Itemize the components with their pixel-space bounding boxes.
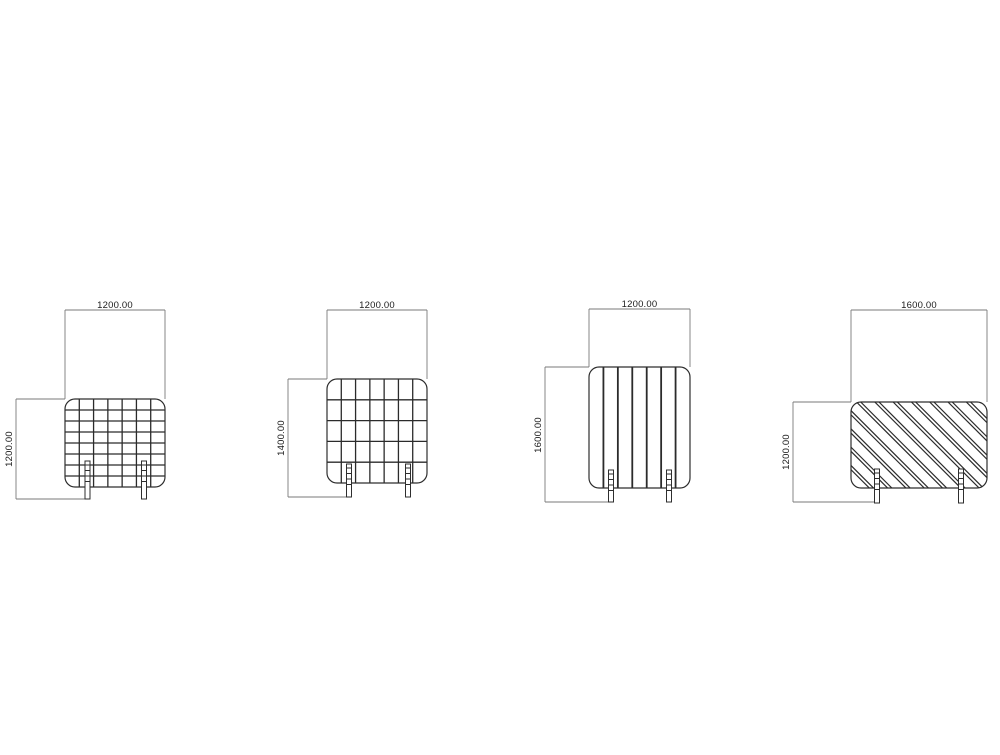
panel-1-square-grid: 1200.001200.00 [4, 300, 165, 499]
panel-1-square-grid-height-label: 1200.00 [4, 431, 15, 467]
panel-1-square-grid-width-label: 1200.00 [97, 300, 133, 311]
panel-2-tall-grid-height-label: 1400.00 [276, 420, 287, 456]
panel-4-diagonal-hatch-width-dimension: 1600.00 [851, 300, 987, 402]
panel-1-square-grid-foot [85, 461, 90, 499]
panel-1-square-grid-width-dimension: 1200.00 [65, 300, 165, 399]
panel-3-vertical-slats-height-label: 1600.00 [533, 417, 544, 453]
foot-post [347, 464, 352, 497]
panel-4-diagonal-hatch-height-label: 1200.00 [781, 434, 792, 470]
panel-3-vertical-slats-width-label: 1200.00 [622, 299, 658, 310]
panel-3-vertical-slats-foot [609, 470, 614, 502]
hatch-line [765, 402, 855, 492]
panel-4-diagonal-hatch: 1600.001200.00 [747, 300, 1000, 503]
panel-2-tall-grid-foot [406, 464, 411, 497]
foot-post [959, 469, 964, 503]
foot-post [85, 461, 90, 499]
technical-drawing-canvas: 1200.001200.001200.001400.001200.001600.… [0, 0, 1000, 755]
foot-post [142, 461, 147, 499]
panel-4-diagonal-hatch-foot [959, 469, 964, 503]
foot-post [406, 464, 411, 497]
panel-1-square-grid-foot [142, 461, 147, 499]
panel-4-diagonal-hatch-foot [875, 469, 880, 503]
panel-2-tall-grid-width-dimension: 1200.00 [327, 300, 427, 379]
panel-3-vertical-slats-width-dimension: 1200.00 [589, 299, 690, 367]
hatch-line [989, 402, 1000, 492]
drawing-svg: 1200.001200.001200.001400.001200.001600.… [0, 0, 1000, 755]
panel-3-vertical-slats-foot [667, 470, 672, 502]
panel-2-tall-grid: 1200.001400.00 [276, 300, 427, 497]
foot-post [667, 470, 672, 502]
panel-4-diagonal-hatch-width-label: 1600.00 [901, 300, 937, 311]
panel-2-tall-grid-surface [327, 379, 427, 483]
panel-3-vertical-slats: 1200.001600.00 [533, 299, 690, 502]
foot-post [609, 470, 614, 502]
hatch-line [751, 402, 841, 492]
panel-2-tall-grid-width-label: 1200.00 [359, 300, 395, 311]
foot-post [875, 469, 880, 503]
panel-2-tall-grid-foot [347, 464, 352, 497]
